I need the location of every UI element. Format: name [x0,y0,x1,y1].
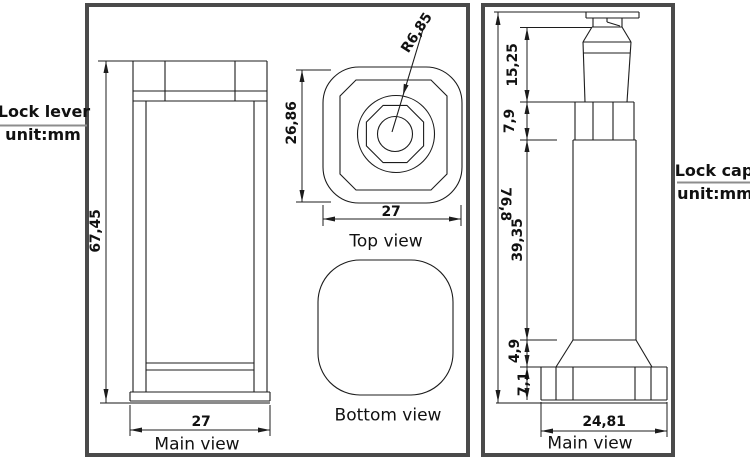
dim-lever-height: 67,45 [89,209,103,252]
left-panel-title: Lock lever [0,104,90,120]
lock-lever-bottom-view-drawing [318,260,453,395]
panel-frames [87,5,673,455]
leader-arrowhead [403,84,409,95]
dim-lever-width: 27 [191,415,210,429]
dim-cap-base: 7,1 [517,372,531,396]
lock-lever-main-view-drawing [98,61,270,403]
left-panel-frame [87,5,468,455]
technical-drawing-page: Lock lever unit:mm Lock cap unit:mm 67,4… [0,0,750,464]
dim-topview-height: 26,86 [285,101,299,144]
main-view-label-right: Main view [547,436,632,453]
lock-lever-top-view-drawing [323,26,462,203]
top-view-label: Top view [349,234,422,251]
right-unit-label: unit:mm [677,186,750,202]
main-view-label-left: Main view [154,437,239,454]
dim-cap-collar: 7,9 [503,109,517,133]
dim-cap-width: 24,81 [582,415,625,429]
lock-lever-main-view-dimensions [106,61,270,436]
dim-topview-width: 27 [381,205,400,219]
dim-cap-taper: 4,9 [508,339,522,363]
dim-cap-head: 15,25 [506,43,520,86]
dim-cap-overall: 76,8 [498,187,512,221]
bottom-view-label: Bottom view [335,408,442,425]
left-unit-label: unit:mm [5,127,81,143]
dim-cap-shaft: 39,35 [511,218,525,261]
right-panel-title: Lock cap [675,163,750,179]
